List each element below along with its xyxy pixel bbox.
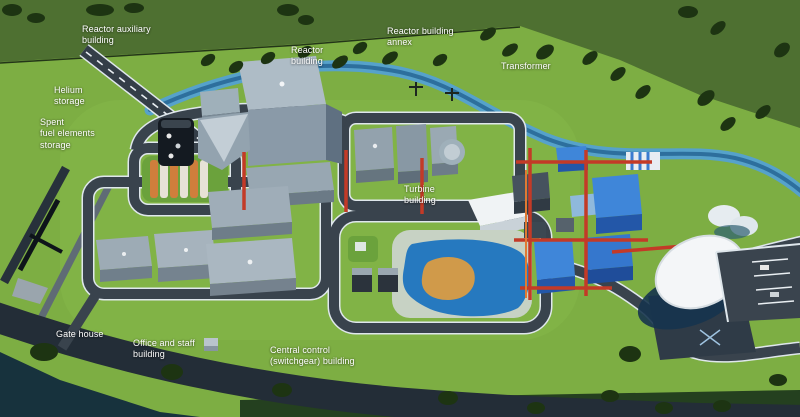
car-icon	[760, 265, 769, 270]
reactor-building-wall	[248, 104, 326, 166]
pond-island	[422, 257, 475, 300]
silo-tank-top	[444, 144, 460, 160]
reactor-building-side	[326, 104, 342, 164]
gate-house-building	[204, 338, 218, 351]
reactor-auxiliary-roof	[200, 88, 240, 116]
parking-asphalt	[716, 244, 800, 322]
site-illustration	[0, 0, 800, 417]
pond-side-hut	[355, 242, 366, 251]
helium-storage-building	[158, 118, 194, 166]
car-icon	[770, 292, 779, 297]
roof-vent	[280, 82, 285, 87]
site-overview-render: Reactor auxiliary building Helium storag…	[0, 0, 800, 417]
parking-lot	[716, 244, 800, 322]
